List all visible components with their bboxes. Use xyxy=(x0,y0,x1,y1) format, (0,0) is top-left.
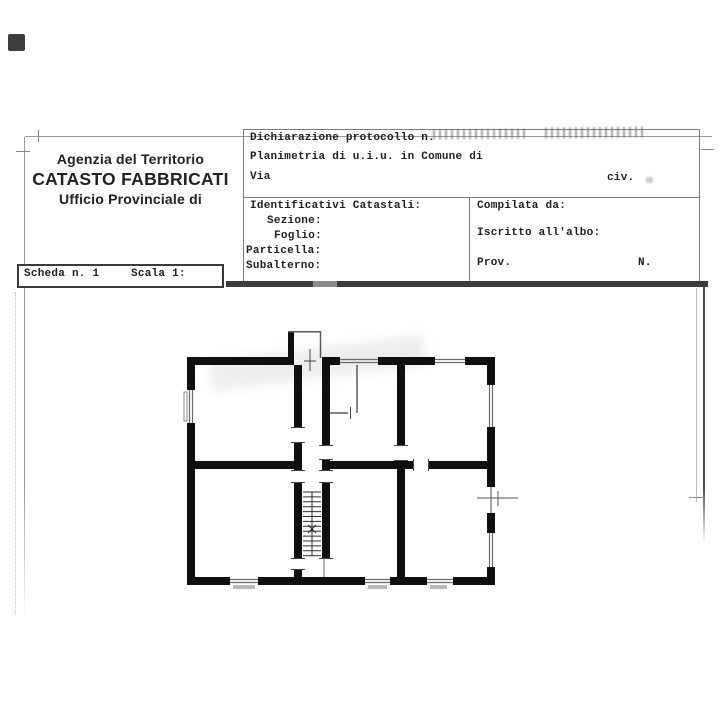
wall-segment xyxy=(487,427,495,487)
wall-segment xyxy=(322,483,330,558)
protocol-date-smudge xyxy=(545,126,647,138)
watermark-smudge xyxy=(209,335,426,391)
street-label: Via xyxy=(250,171,271,183)
civic-smudge xyxy=(646,177,653,183)
registration-tick-top xyxy=(38,130,39,142)
registration-tick-right-lower xyxy=(689,497,704,498)
window-outer-frame xyxy=(184,392,187,421)
window-sill xyxy=(430,585,447,589)
scan-corner-mark xyxy=(8,34,25,51)
province-label: Prov. xyxy=(477,257,511,269)
scale-label: Scala 1: xyxy=(131,268,186,280)
staircase xyxy=(303,492,321,556)
provincial-office-label: Ufficio Provinciale di xyxy=(28,190,233,208)
cadastral-identifiers-label: Identificativi Catastali: xyxy=(250,200,421,212)
compiled-by-label: Compilata da: xyxy=(477,200,566,212)
planimetry-label: Planimetria di u.i.u. in Comune di xyxy=(250,151,483,163)
scanned-cadastral-document: { "header": { "line1": "Agenzia del Terr… xyxy=(0,0,720,720)
window-sill xyxy=(233,585,255,589)
wall-segment xyxy=(487,357,495,385)
stair-break-mark xyxy=(308,525,316,533)
wall-segment xyxy=(487,567,495,585)
sheet-border-left-outer xyxy=(15,292,16,614)
parcel-label: Particella: xyxy=(246,245,321,257)
section-label: Sezione: xyxy=(267,215,322,227)
wall-segment xyxy=(187,577,230,585)
number-label: N. xyxy=(638,257,652,269)
wall-segment xyxy=(465,357,495,365)
wall-segment xyxy=(294,443,302,470)
wall-segment xyxy=(397,469,405,577)
protocol-number-smudge xyxy=(433,129,525,140)
outer-walls xyxy=(187,357,495,585)
form-bottom-rule xyxy=(226,281,708,287)
wall-segment xyxy=(187,423,195,585)
scheda-number-label: Scheda n. 1 xyxy=(24,268,99,280)
wall-segment xyxy=(195,461,294,469)
agency-name: Agenzia del Territorio xyxy=(28,150,233,168)
registration-tick-right xyxy=(701,149,714,150)
wall-segment xyxy=(294,570,302,577)
window-sill xyxy=(368,585,387,589)
wall-segment xyxy=(453,577,495,585)
wall-segment xyxy=(322,460,330,470)
sheet-border-right-inner xyxy=(696,288,697,502)
wall-segment xyxy=(330,461,413,469)
wall-segment xyxy=(390,577,427,585)
form-divider-vertical xyxy=(469,197,470,283)
register-label: Iscritto all'albo: xyxy=(477,227,600,239)
stair-break-mark xyxy=(308,525,316,533)
sheet-border-left xyxy=(24,137,25,620)
sheet-border-right-outer xyxy=(703,285,705,543)
wall-segment xyxy=(397,365,405,445)
sheet-label: Foglio: xyxy=(274,230,322,242)
subaltern-label: Subalterno: xyxy=(246,260,321,272)
form-bottom-rule-light-segment xyxy=(313,281,337,287)
window-sills xyxy=(233,585,447,589)
wall-segment xyxy=(429,461,487,469)
declaration-protocol-label: Dichiarazione protocollo n. xyxy=(250,132,435,144)
wall-segment xyxy=(487,513,495,533)
cadastre-title: CATASTO FABBRICATI xyxy=(28,168,233,190)
form-divider-horizontal xyxy=(243,197,699,198)
windows xyxy=(190,360,493,583)
civic-number-label: civ. xyxy=(607,172,634,184)
wall-segment xyxy=(294,483,302,558)
door-ticks xyxy=(291,428,429,570)
wall-segment xyxy=(258,577,365,585)
wall-segment xyxy=(187,357,195,390)
letterhead: Agenzia del Territorio CATASTO FABBRICAT… xyxy=(28,150,233,208)
